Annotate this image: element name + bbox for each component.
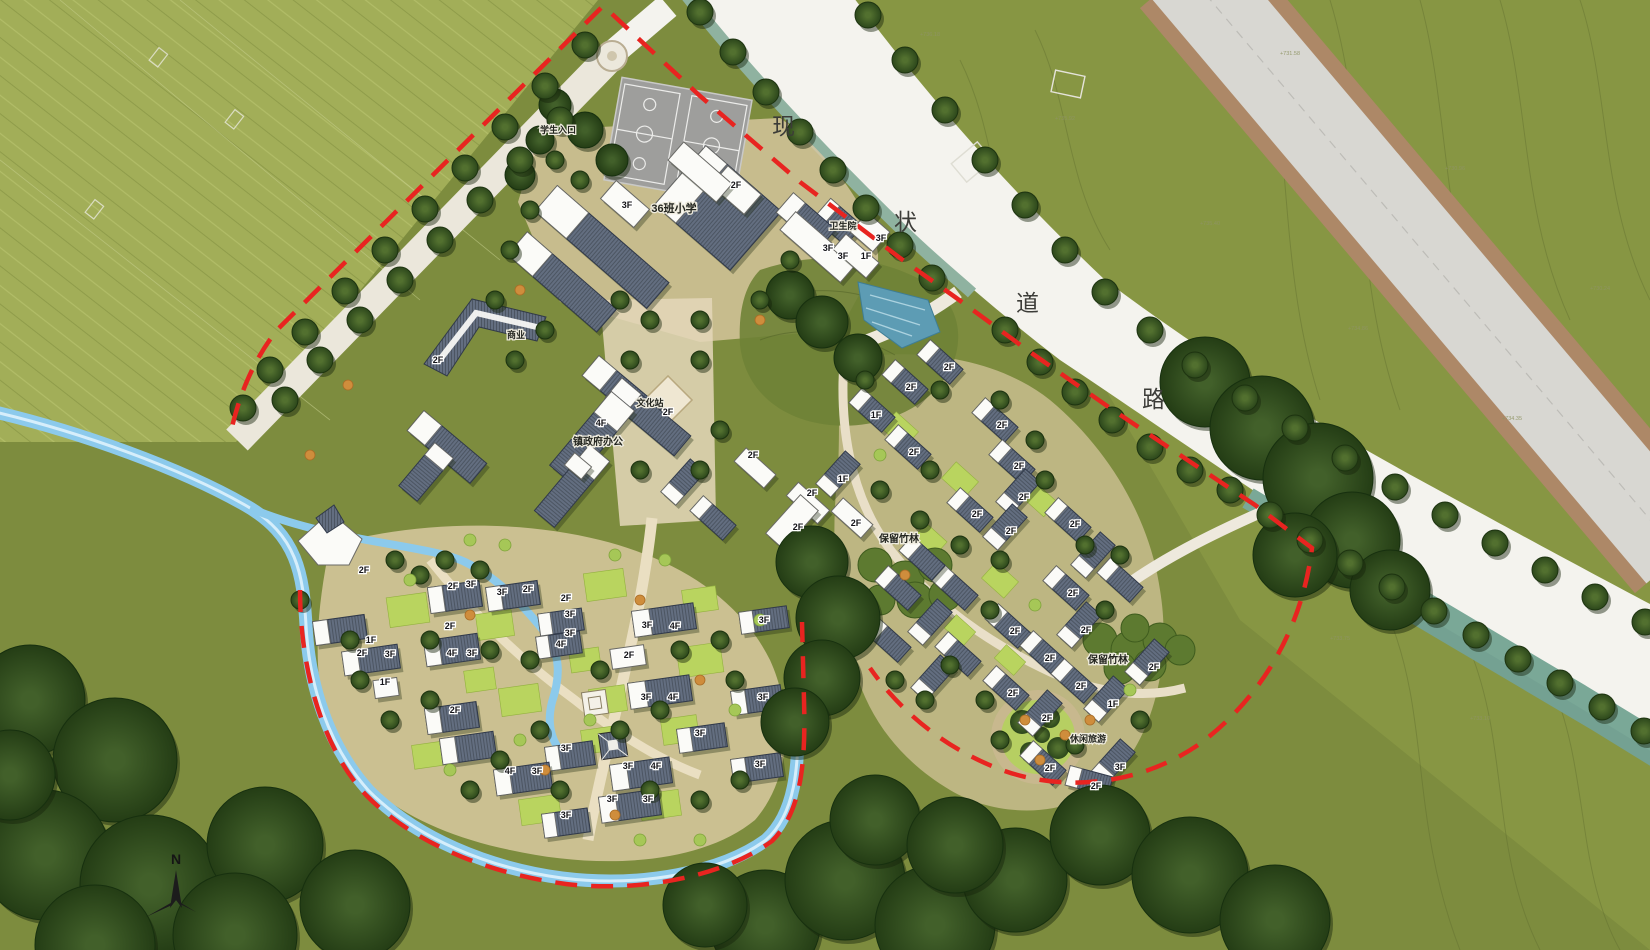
- floor-label: 1F: [1108, 699, 1119, 709]
- tree: [1232, 385, 1258, 411]
- tree: [341, 631, 359, 649]
- floor-label: 2F: [1006, 526, 1017, 536]
- tree: [931, 381, 949, 399]
- shrub: [694, 834, 706, 846]
- tree: [892, 47, 918, 73]
- floor-label: 4F: [556, 639, 567, 649]
- elevation-mark: +733.75: [1330, 636, 1350, 642]
- tree: [611, 721, 629, 739]
- building-white-wing: [677, 728, 694, 754]
- tree: [1547, 670, 1573, 696]
- tree: [1505, 646, 1531, 672]
- shrub: [634, 834, 646, 846]
- floor-label: 2F: [624, 650, 635, 660]
- floor-label: 2F: [972, 509, 983, 519]
- floor-label: 2F: [1042, 713, 1053, 723]
- floor-label: 2F: [807, 488, 818, 498]
- shrub: [1124, 684, 1136, 696]
- tree: [571, 171, 589, 189]
- building-white-wing: [439, 737, 458, 765]
- elevation-mark: +734.35: [1502, 416, 1522, 422]
- tree: [1096, 601, 1114, 619]
- tree: [461, 781, 479, 799]
- floor-label: 2F: [1081, 625, 1092, 635]
- elevation-mark: +736.18: [920, 32, 940, 38]
- floor-label: 4F: [505, 766, 516, 776]
- floor-label: 2F: [1008, 688, 1019, 698]
- floor-label: 3F: [695, 728, 706, 738]
- plaza-pavilion: [581, 689, 608, 716]
- area-label: 卫生院: [829, 220, 856, 231]
- tree: [991, 731, 1009, 749]
- tree: [761, 688, 829, 756]
- tree: [907, 797, 1003, 893]
- building-white-wing: [313, 620, 331, 646]
- tree: [332, 278, 358, 304]
- floor-label: 2F: [851, 518, 862, 528]
- tree: [1382, 474, 1408, 500]
- tree: [911, 511, 929, 529]
- floor-label: 4F: [651, 761, 662, 771]
- floor-label: 2F: [1149, 662, 1160, 672]
- road-name-char: 现: [772, 114, 796, 139]
- floor-label: 3F: [1115, 762, 1126, 772]
- tree: [1052, 237, 1078, 263]
- area-label: 镇政府办公: [573, 435, 623, 448]
- tree: [1432, 502, 1458, 528]
- floor-label: 2F: [1045, 763, 1056, 773]
- floor-label: 1F: [871, 410, 882, 420]
- building-white-wing: [739, 611, 755, 635]
- courtyard-green: [583, 568, 627, 601]
- floor-label: 2F: [1070, 519, 1081, 529]
- tree: [347, 307, 373, 333]
- north-label: N: [171, 851, 181, 867]
- floor-label: 1F: [861, 251, 872, 261]
- shrub: [444, 764, 456, 776]
- tree: [941, 656, 959, 674]
- floor-label: 2F: [357, 648, 368, 658]
- floor-label: 4F: [447, 648, 458, 658]
- tree: [272, 387, 298, 413]
- shrub: [1029, 599, 1041, 611]
- tree: [691, 311, 709, 329]
- floor-label: 3F: [565, 628, 576, 638]
- road-name-char: 状: [894, 210, 918, 235]
- shrub: [514, 734, 526, 746]
- tree: [820, 157, 846, 183]
- autumn-shrub: [515, 285, 525, 295]
- floor-label: 3F: [607, 794, 618, 804]
- autumn-shrub: [695, 675, 705, 685]
- tree: [1463, 622, 1489, 648]
- road-name-char: 路: [1142, 387, 1166, 412]
- autumn-shrub: [1020, 715, 1030, 725]
- floor-label: 3F: [385, 649, 396, 659]
- area-label: 保留竹林: [1087, 653, 1129, 666]
- floor-label: 3F: [876, 233, 887, 243]
- tree: [546, 151, 564, 169]
- floor-label: 3F: [623, 761, 634, 771]
- bamboo-grove: [1121, 614, 1149, 642]
- floor-label: 3F: [532, 766, 543, 776]
- tree: [611, 291, 629, 309]
- shrub: [729, 704, 741, 716]
- autumn-shrub: [1035, 755, 1045, 765]
- tree: [796, 296, 848, 348]
- tree: [1012, 192, 1038, 218]
- tree: [1111, 546, 1129, 564]
- tree: [452, 155, 478, 181]
- tree: [501, 241, 519, 259]
- tree: [257, 357, 283, 383]
- tree: [972, 147, 998, 173]
- tree: [307, 347, 333, 373]
- tree: [651, 701, 669, 719]
- shrub: [464, 534, 476, 546]
- floor-label: 3F: [561, 810, 572, 820]
- tree: [687, 0, 713, 25]
- tree: [427, 227, 453, 253]
- tree: [631, 461, 649, 479]
- tree: [853, 195, 879, 221]
- floor-label: 2F: [523, 584, 534, 594]
- tree: [381, 711, 399, 729]
- shrub: [659, 554, 671, 566]
- tree: [1532, 557, 1558, 583]
- autumn-shrub: [635, 595, 645, 605]
- autumn-shrub: [305, 450, 315, 460]
- tree: [991, 551, 1009, 569]
- tree: [641, 311, 659, 329]
- tree: [976, 691, 994, 709]
- courtyard-green: [498, 683, 542, 716]
- tree: [691, 461, 709, 479]
- elevation-mark: +730.24: [1590, 286, 1610, 292]
- floor-label: 3F: [466, 579, 477, 589]
- floor-label: 3F: [642, 620, 653, 630]
- tree: [921, 461, 939, 479]
- elevation-mark: +734.86: [1348, 326, 1368, 332]
- elevation-mark: +733.10: [1470, 716, 1490, 722]
- tree: [691, 791, 709, 809]
- tree: [951, 536, 969, 554]
- shrub: [874, 449, 886, 461]
- floor-label: 3F: [643, 794, 654, 804]
- tree: [531, 721, 549, 739]
- floor-label: 2F: [1068, 588, 1079, 598]
- tree: [1421, 598, 1447, 624]
- floor-label: 3F: [823, 243, 834, 253]
- tree: [1337, 550, 1363, 576]
- floor-label: 3F: [565, 609, 576, 619]
- autumn-shrub: [343, 380, 353, 390]
- floor-label: 2F: [450, 705, 461, 715]
- elevation-mark: +735.92: [1055, 116, 1075, 122]
- shrub: [499, 539, 511, 551]
- tree: [621, 351, 639, 369]
- tree: [1332, 445, 1358, 471]
- floor-label: 3F: [467, 648, 478, 658]
- tree: [932, 97, 958, 123]
- tree: [521, 651, 539, 669]
- floor-label: 2F: [445, 621, 456, 631]
- floor-label: 4F: [670, 621, 681, 631]
- building-white-wing: [542, 813, 558, 839]
- floor-label: 2F: [1010, 626, 1021, 636]
- tree: [1137, 317, 1163, 343]
- tree: [536, 321, 554, 339]
- tree: [751, 291, 769, 309]
- floor-label: 1F: [380, 677, 391, 687]
- tree: [492, 114, 518, 140]
- floor-label: 2F: [359, 565, 370, 575]
- tree: [916, 691, 934, 709]
- tree: [1589, 694, 1615, 720]
- floor-label: 2F: [561, 593, 572, 603]
- tree: [720, 39, 746, 65]
- floor-label: 3F: [497, 587, 508, 597]
- tree: [591, 661, 609, 679]
- courtyard-green: [464, 667, 497, 693]
- roundabout-island: [607, 51, 617, 61]
- tree: [886, 671, 904, 689]
- tree: [292, 319, 318, 345]
- floor-label: 2F: [944, 362, 955, 372]
- floor-label: 2F: [1091, 781, 1102, 791]
- tree: [753, 79, 779, 105]
- tree: [855, 2, 881, 28]
- tree: [471, 561, 489, 579]
- tree: [887, 232, 913, 258]
- floor-label: 4F: [596, 418, 607, 428]
- tree: [726, 671, 744, 689]
- autumn-shrub: [465, 610, 475, 620]
- floor-label: 2F: [731, 180, 742, 190]
- bamboo-grove: [1165, 635, 1195, 665]
- autumn-shrub: [610, 810, 620, 820]
- shrub: [609, 549, 621, 561]
- tree: [421, 631, 439, 649]
- tree: [467, 187, 493, 213]
- floor-label: 2F: [433, 355, 444, 365]
- elevation-mark: +730.96: [1445, 166, 1465, 172]
- tree: [991, 391, 1009, 409]
- tree: [731, 771, 749, 789]
- floor-label: 4F: [668, 692, 679, 702]
- building-white-wing: [538, 612, 553, 636]
- tree: [1076, 536, 1094, 554]
- autumn-shrub: [755, 315, 765, 325]
- tree: [663, 863, 747, 947]
- elevation-mark: +735.40: [1200, 221, 1220, 227]
- area-label: 文化站: [635, 397, 663, 408]
- tree: [387, 267, 413, 293]
- road-name-char: 道: [1016, 291, 1040, 316]
- tree: [1282, 415, 1308, 441]
- tree: [596, 144, 628, 176]
- tree: [386, 551, 404, 569]
- floor-label: 2F: [997, 420, 1008, 430]
- floor-label: 3F: [561, 743, 572, 753]
- site-plan-svg: +736.18+735.92+735.40+734.86+734.35+731.…: [0, 0, 1650, 950]
- floor-label: 2F: [1045, 653, 1056, 663]
- tree: [436, 551, 454, 569]
- tree: [507, 147, 533, 173]
- tree: [372, 237, 398, 263]
- tree: [1137, 434, 1163, 460]
- floor-label: 2F: [448, 581, 459, 591]
- area-label: 商业: [507, 329, 525, 340]
- shrub: [584, 714, 596, 726]
- floor-label: 2F: [909, 447, 920, 457]
- tree: [1182, 352, 1208, 378]
- floor-label: 3F: [755, 759, 766, 769]
- area-label: 学生入口: [540, 124, 576, 135]
- tree: [1026, 431, 1044, 449]
- tree: [691, 351, 709, 369]
- floor-label: 3F: [641, 692, 652, 702]
- tree: [1482, 530, 1508, 556]
- autumn-shrub: [1085, 715, 1095, 725]
- tree: [421, 691, 439, 709]
- tree: [1036, 471, 1054, 489]
- floor-label: 2F: [1014, 461, 1025, 471]
- masterplan-image: +736.18+735.92+735.40+734.86+734.35+731.…: [0, 0, 1650, 950]
- tree: [711, 631, 729, 649]
- floor-label: 1F: [838, 474, 849, 484]
- tree: [1379, 574, 1405, 600]
- tree: [1131, 711, 1149, 729]
- floor-label: 3F: [622, 200, 633, 210]
- tree: [1027, 349, 1053, 375]
- building-white-wing: [427, 586, 445, 614]
- floor-label: 2F: [793, 522, 804, 532]
- elevation-mark: +731.58: [1280, 51, 1300, 57]
- floor-label: 2F: [906, 382, 917, 392]
- autumn-shrub: [1060, 730, 1070, 740]
- tree: [412, 196, 438, 222]
- tree: [871, 481, 889, 499]
- tree: [711, 421, 729, 439]
- tree: [351, 671, 369, 689]
- tree: [1582, 584, 1608, 610]
- tree: [781, 251, 799, 269]
- floor-label: 3F: [759, 615, 770, 625]
- tree: [830, 775, 920, 865]
- tree: [521, 201, 539, 219]
- area-label: 休闲旅游: [1069, 733, 1106, 744]
- tree: [532, 73, 558, 99]
- floor-label: 2F: [1019, 492, 1030, 502]
- tree: [486, 291, 504, 309]
- autumn-shrub: [900, 570, 910, 580]
- floor-label: 2F: [663, 407, 674, 417]
- floor-label: 2F: [748, 450, 759, 460]
- tree: [551, 781, 569, 799]
- floor-label: 3F: [758, 692, 769, 702]
- tree: [981, 601, 999, 619]
- tree: [856, 371, 874, 389]
- tree: [506, 351, 524, 369]
- shrub: [404, 574, 416, 586]
- tree: [671, 641, 689, 659]
- floor-label: 1F: [366, 635, 377, 645]
- area-label: 36班小学: [651, 201, 696, 215]
- courtyard-green: [386, 592, 430, 627]
- tree: [1099, 407, 1125, 433]
- tree: [1092, 279, 1118, 305]
- floor-label: 2F: [1076, 681, 1087, 691]
- area-label: 保留竹林: [878, 532, 920, 545]
- floor-label: 3F: [838, 251, 849, 261]
- tree: [481, 641, 499, 659]
